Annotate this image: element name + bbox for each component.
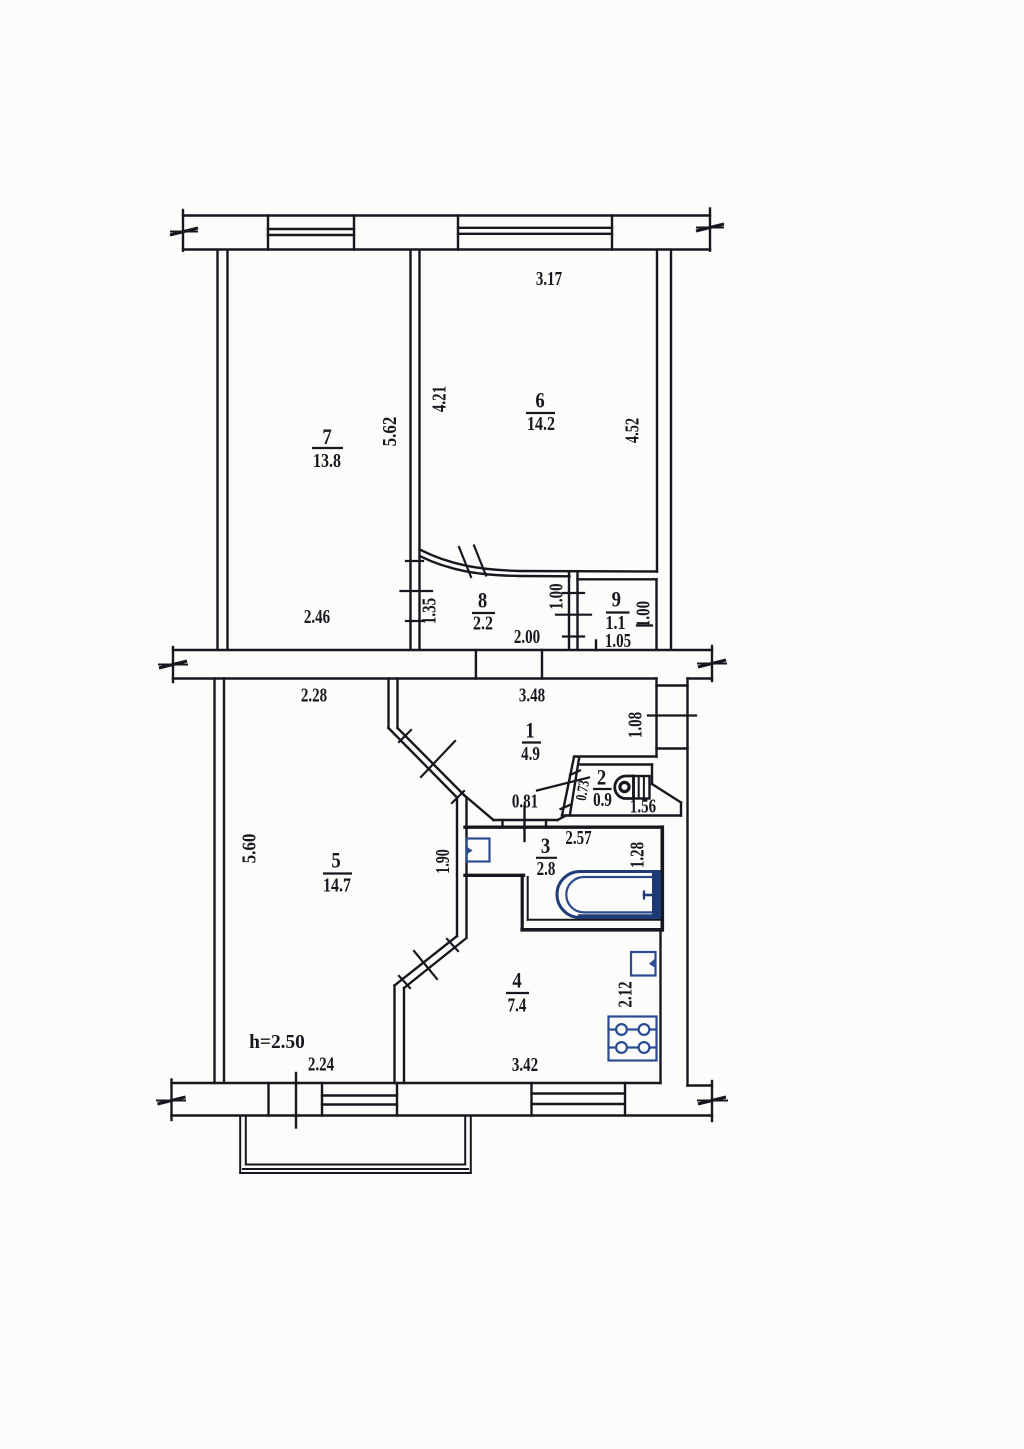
svg-text:3.48: 3.48 [519,683,545,706]
svg-text:0.9: 0.9 [593,788,612,811]
svg-text:h=2.50: h=2.50 [249,1031,305,1053]
svg-text:1.05: 1.05 [605,629,631,652]
svg-text:2.8: 2.8 [537,857,556,880]
svg-text:2.12: 2.12 [613,981,636,1007]
svg-text:9: 9 [612,588,621,612]
svg-text:14.2: 14.2 [527,412,555,434]
svg-text:1.28: 1.28 [625,842,648,868]
svg-text:2.00: 2.00 [514,625,540,648]
svg-text:1.56: 1.56 [630,794,656,817]
svg-text:8: 8 [478,589,487,613]
svg-text:4.9: 4.9 [521,742,540,765]
svg-text:7: 7 [322,426,331,450]
svg-text:0.73: 0.73 [572,779,592,802]
svg-text:3.42: 3.42 [512,1053,538,1076]
svg-text:4.21: 4.21 [427,386,450,412]
svg-text:4: 4 [512,969,521,993]
svg-text:2.46: 2.46 [304,605,330,628]
svg-text:4.52: 4.52 [620,418,643,443]
svg-text:5.62: 5.62 [379,417,402,447]
svg-text:1.08: 1.08 [623,712,646,738]
svg-text:1: 1 [525,719,534,743]
svg-text:2.24: 2.24 [308,1052,334,1075]
svg-text:1.00: 1.00 [544,583,567,609]
svg-text:14.7: 14.7 [323,874,351,896]
svg-text:1.35: 1.35 [417,598,440,624]
svg-text:2.57: 2.57 [565,826,591,849]
svg-text:2: 2 [597,766,606,790]
svg-text:1.00: 1.00 [631,601,654,627]
svg-text:0.81: 0.81 [512,789,538,812]
svg-text:5: 5 [331,849,340,873]
svg-text:6: 6 [535,389,544,413]
svg-text:3: 3 [541,835,550,859]
svg-text:2.2: 2.2 [473,612,493,634]
svg-text:5.60: 5.60 [238,834,261,864]
svg-text:2.28: 2.28 [301,683,327,706]
svg-text:13.8: 13.8 [313,449,341,471]
svg-text:7.4: 7.4 [508,993,527,1016]
svg-text:3.17: 3.17 [536,267,562,290]
svg-text:1.90: 1.90 [432,849,454,873]
